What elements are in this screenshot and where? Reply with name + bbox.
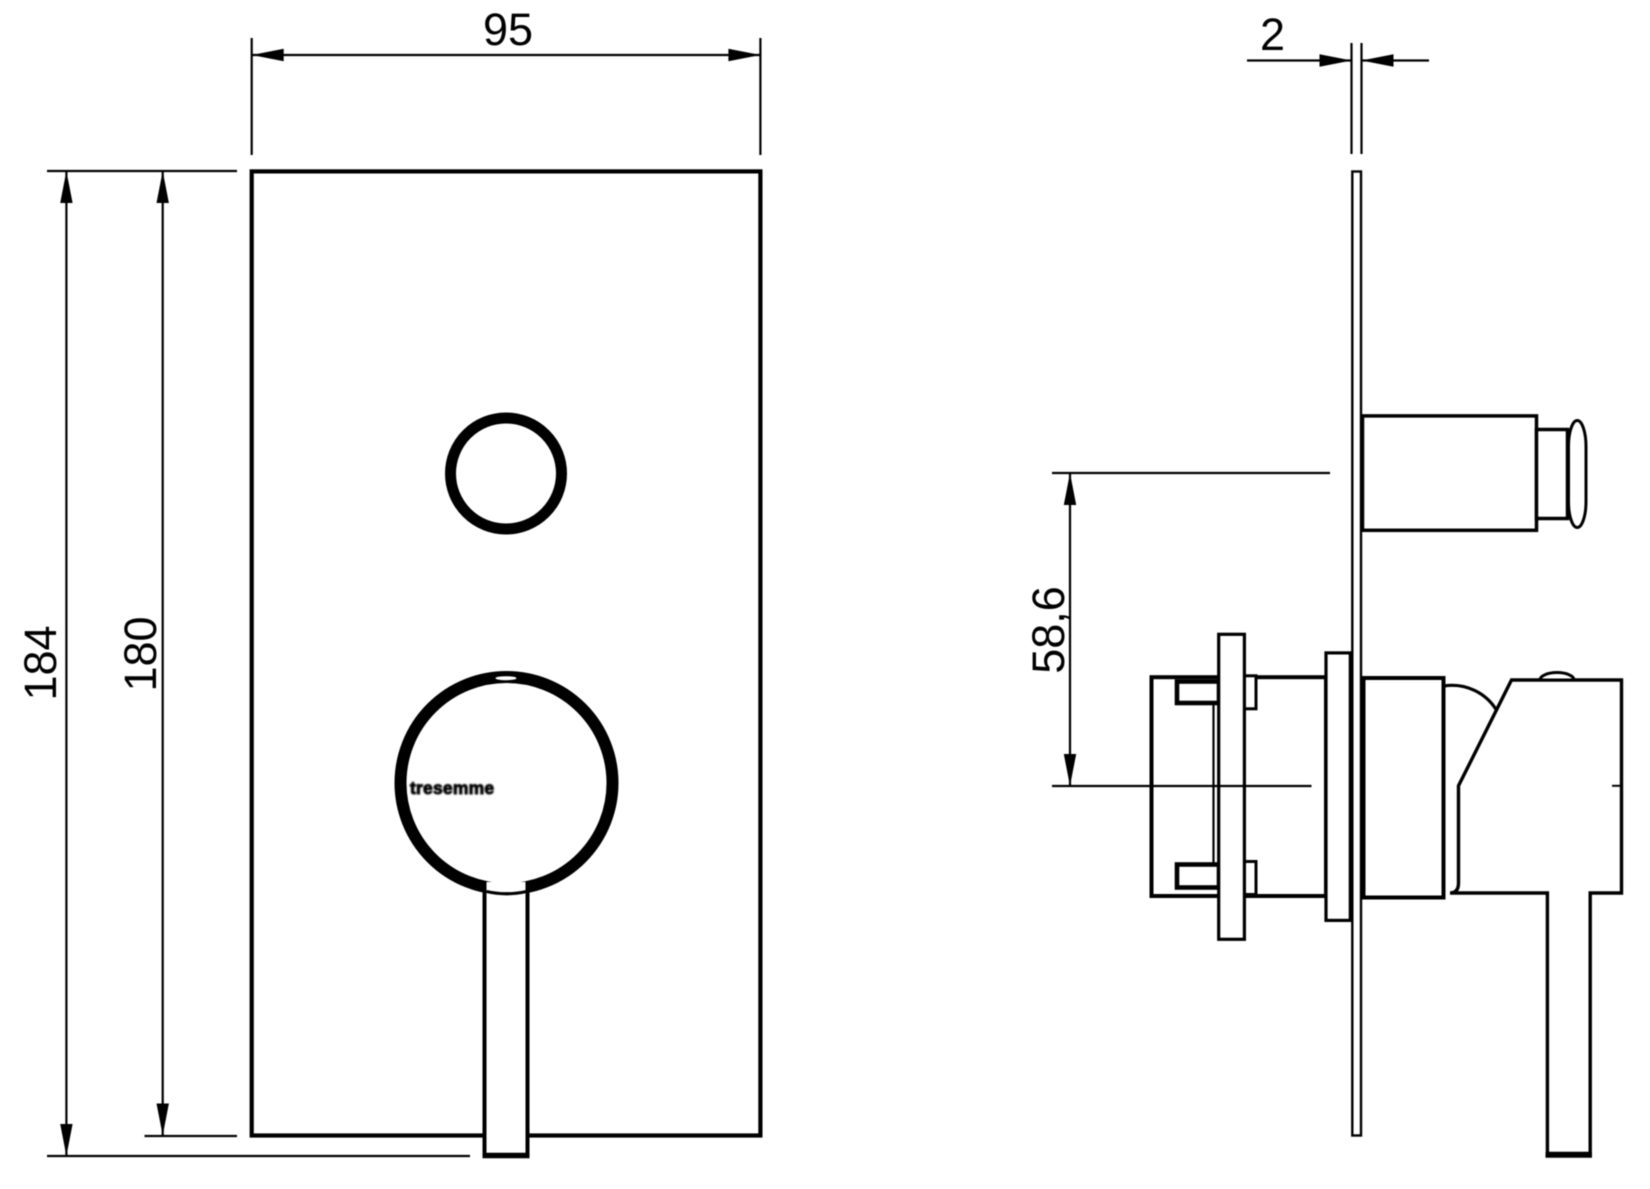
svg-text:184: 184 [15, 625, 66, 700]
svg-text:58,6: 58,6 [1023, 586, 1074, 674]
svg-text:tresemme: tresemme [410, 778, 494, 798]
svg-text:95: 95 [483, 4, 533, 55]
svg-text:180: 180 [115, 616, 166, 691]
svg-text:2: 2 [1260, 9, 1285, 60]
